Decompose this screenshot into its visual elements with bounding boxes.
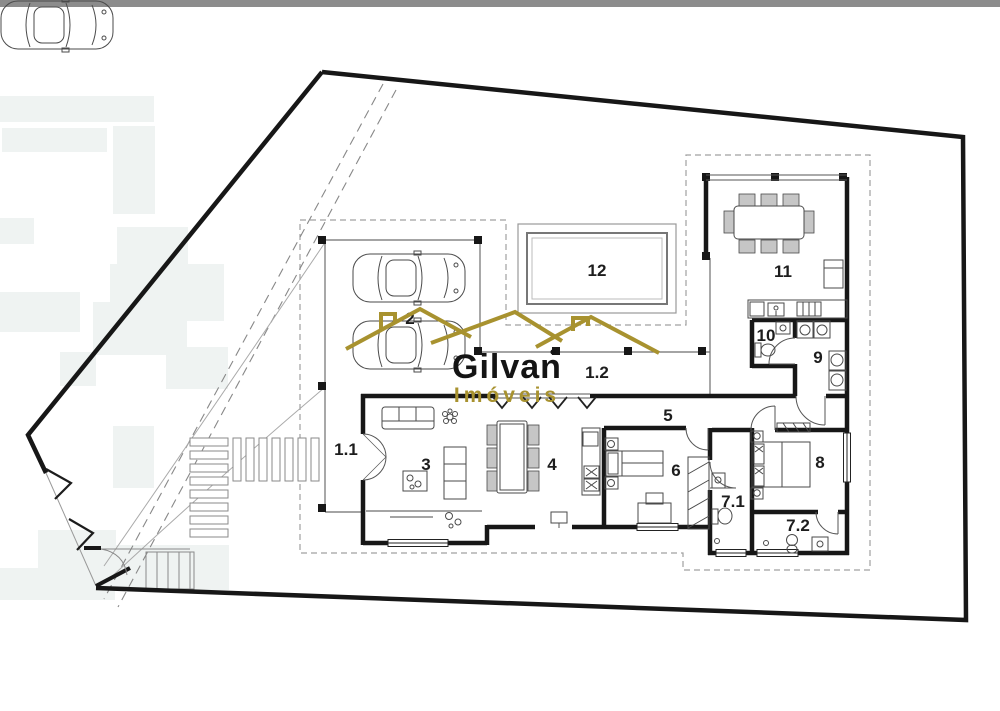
room-label-gourmet: 11 xyxy=(774,262,792,281)
stair-flight-horizontal xyxy=(233,438,319,481)
room-label-hall: 5 xyxy=(663,406,672,425)
room-label-veranda: 1.2 xyxy=(585,363,609,382)
dining-table-icon xyxy=(487,421,539,493)
brand-name: Gilvan xyxy=(452,348,562,386)
floorplan-canvas: 1.1 1.2 2 3 4 5 6 7.1 7.2 8 9 10 11 12 G… xyxy=(0,0,1000,711)
room-label-entry-porch: 1.1 xyxy=(334,440,358,459)
room-label-bedroom6: 6 xyxy=(671,461,680,480)
room-label-bath7-2: 7.2 xyxy=(786,516,810,535)
room-label-bath7-1: 7.1 xyxy=(721,492,745,511)
brand-tagline: Imóveis xyxy=(454,384,560,407)
room-label-laundry: 9 xyxy=(813,348,822,367)
top-edge-strip xyxy=(0,0,1000,7)
room-label-living: 3 xyxy=(421,455,430,474)
room-label-dining: 4 xyxy=(547,455,557,474)
room-label-bedroom8: 8 xyxy=(815,453,824,472)
floorplan-page: 1.1 1.2 2 3 4 5 6 7.1 7.2 8 9 10 11 12 G… xyxy=(0,0,1000,711)
room-label-pool: 12 xyxy=(588,261,607,280)
room-label-lavatory: 10 xyxy=(757,326,776,345)
